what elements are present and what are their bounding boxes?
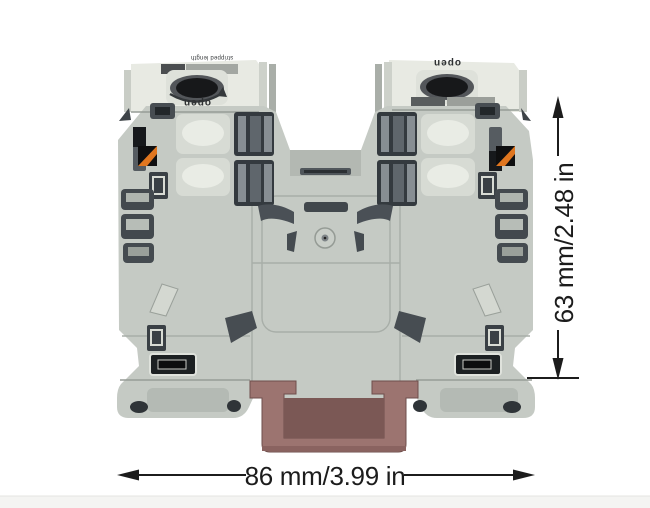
open-label-right: open	[433, 57, 461, 68]
footer-strip	[0, 496, 650, 508]
arrow-right-icon	[513, 470, 535, 481]
orange-marker-left	[138, 146, 157, 166]
center-rivet	[315, 228, 335, 248]
foot-recess-left	[147, 388, 229, 412]
left-tower: stripped length open	[124, 54, 262, 112]
height-dimension-label: 63 mm/2.48 in	[549, 163, 579, 324]
arrow-left-icon	[117, 470, 139, 481]
product-image: stripped length open open stripped lengt…	[0, 0, 650, 508]
clamp-inner-face	[284, 398, 384, 438]
arrow-up-icon	[553, 96, 564, 118]
width-dimension: 86 mm/3.99 in	[117, 461, 535, 491]
arrow-down-icon	[553, 358, 564, 380]
width-dimension-label: 86 mm/3.99 in	[245, 461, 406, 491]
marking-left: stripped length	[191, 54, 233, 60]
terminal-block-illustration: stripped length open open stripped lengt…	[0, 0, 650, 508]
right-clamp-screw	[420, 74, 474, 100]
height-dimension: 63 mm/2.48 in	[527, 96, 579, 380]
orange-marker-right	[496, 146, 515, 166]
right-tower: open stripped length	[389, 57, 527, 113]
